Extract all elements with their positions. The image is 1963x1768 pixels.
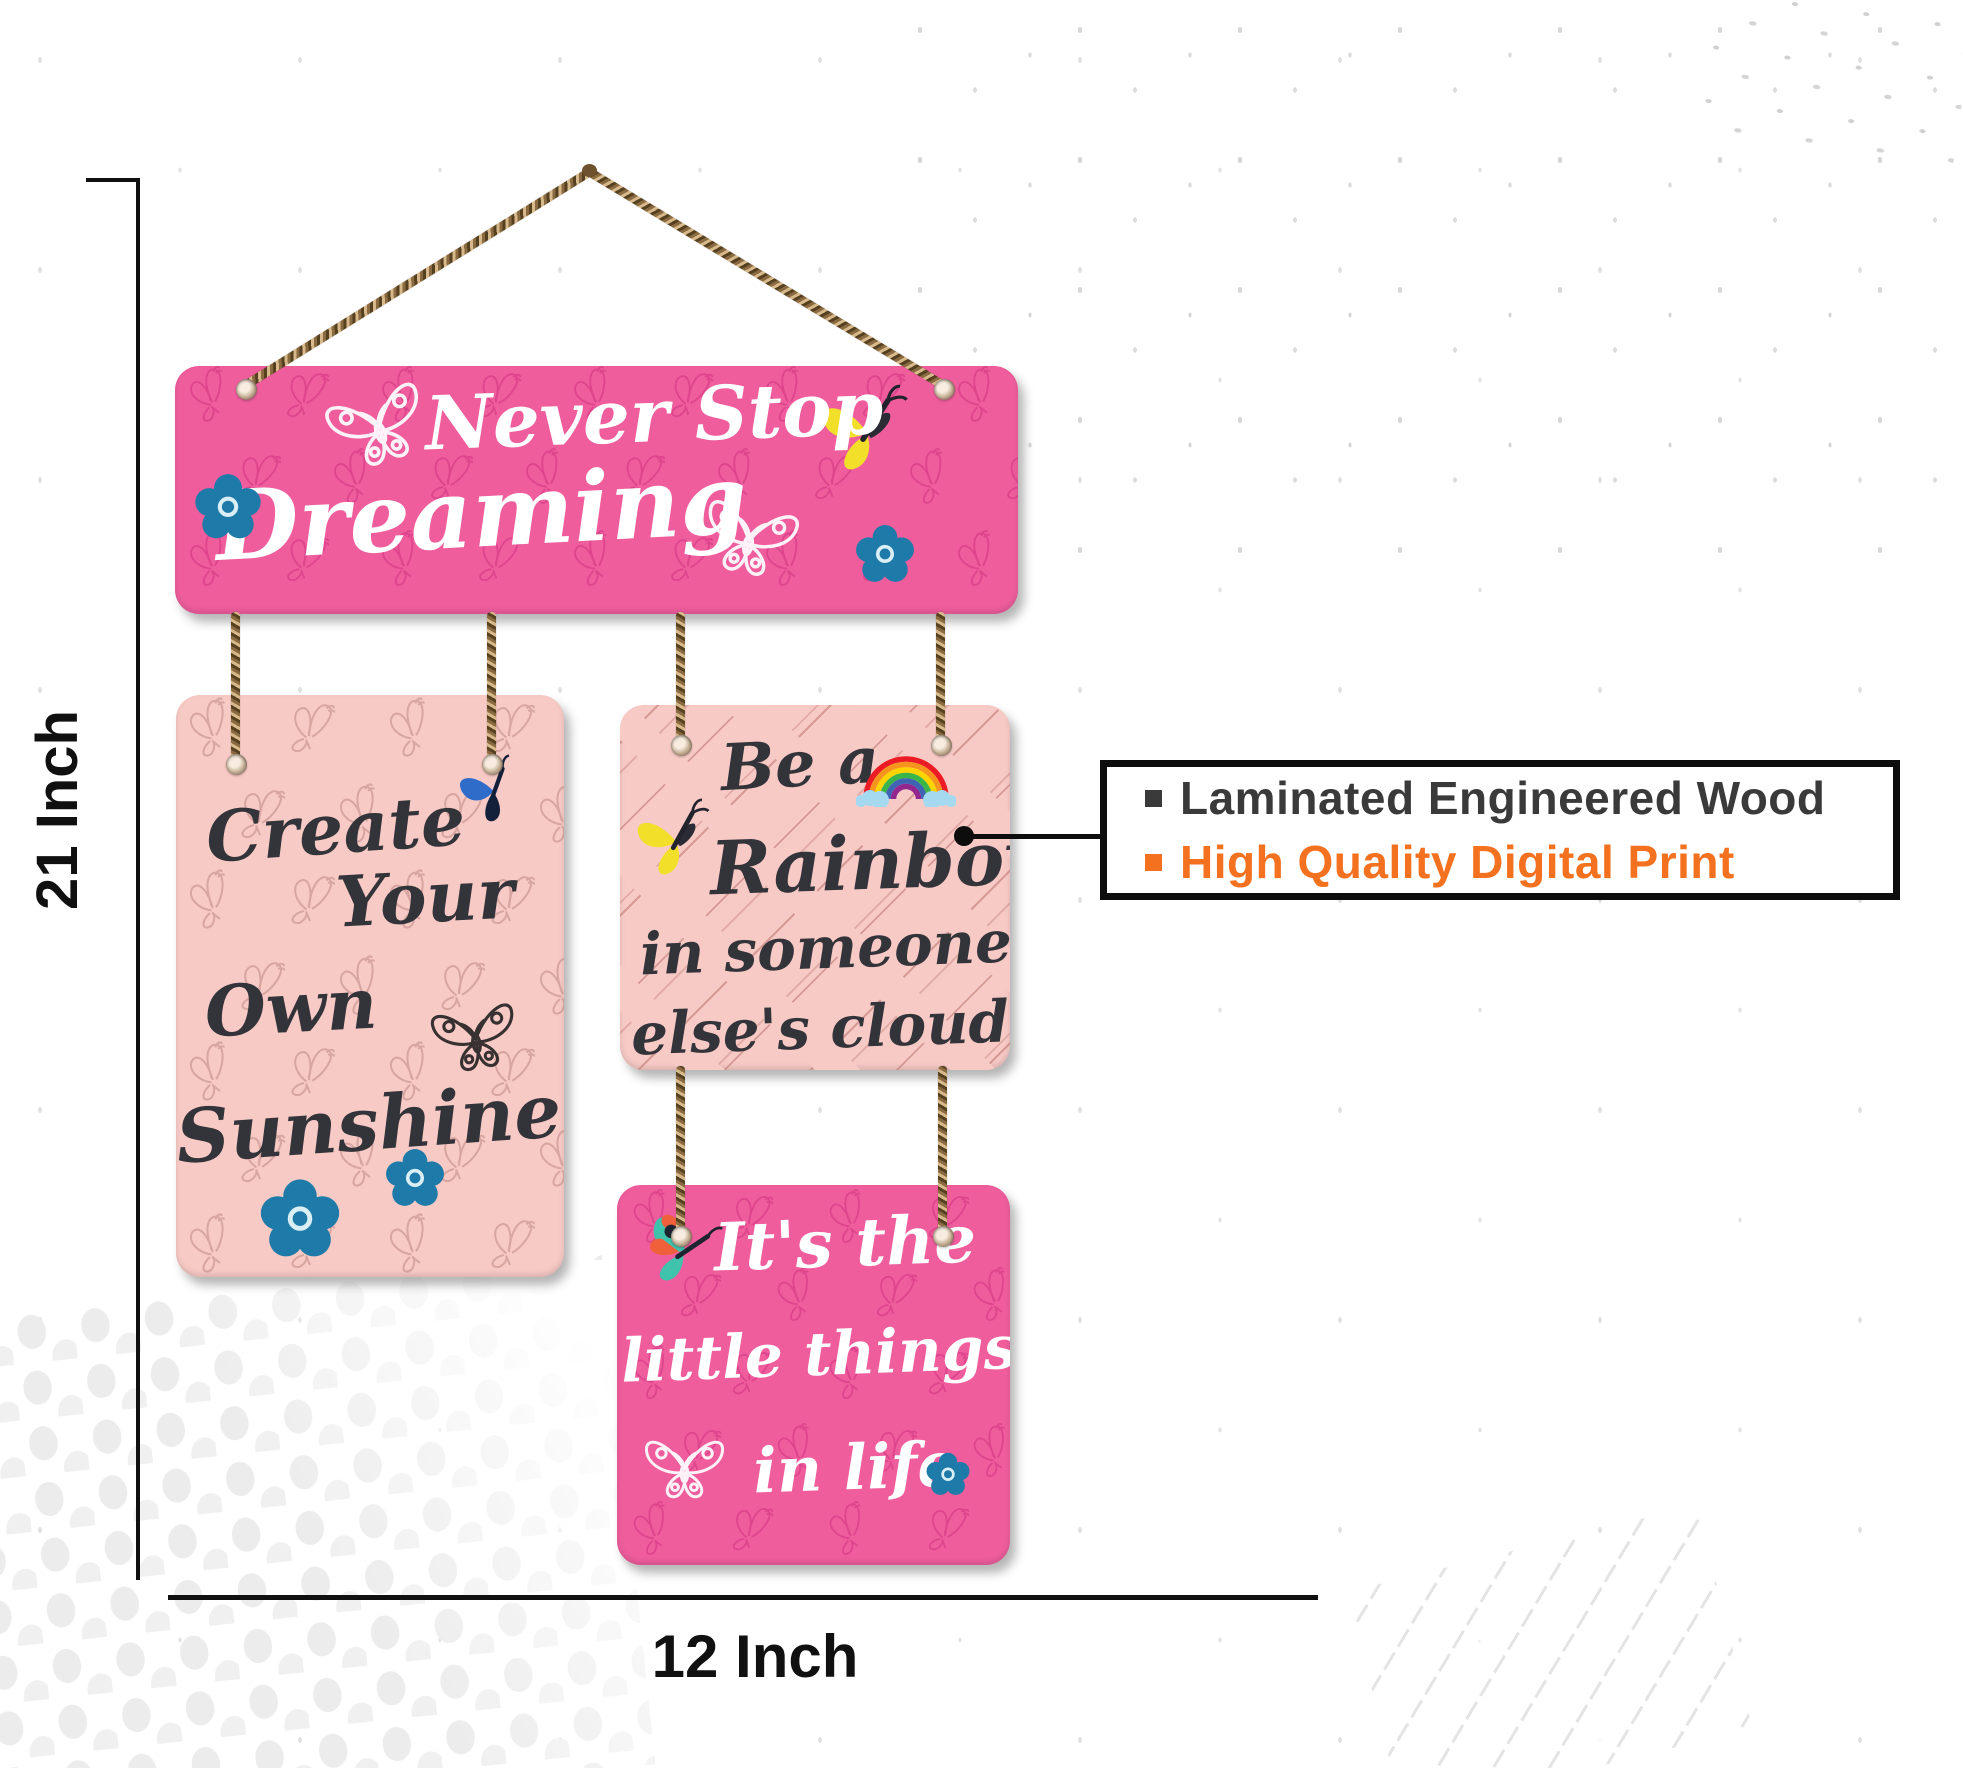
board-create-your-own-sunshine: Create Your Own Sunshine	[176, 695, 564, 1277]
height-dimension-label: 21 Inch	[28, 690, 88, 930]
product-image: Never Stop Dreaming Create Your Own Suns…	[0, 0, 1963, 1768]
rope-hanger	[487, 612, 496, 767]
board-text-line: else's cloud	[629, 992, 1010, 1063]
rope-hanger	[676, 612, 685, 747]
rope-hanger	[938, 1066, 947, 1238]
lace-butterfly-icon	[685, 471, 815, 601]
height-dimension-cap	[86, 178, 140, 182]
callout-connector-line	[963, 834, 1100, 839]
square-bullet-icon	[1145, 790, 1162, 807]
background-halftone-fade	[0, 1260, 700, 1768]
board-text-line: Dreaming	[213, 453, 717, 575]
rope-hole	[236, 379, 257, 400]
rope-hole	[934, 379, 955, 400]
rope-hole	[482, 754, 503, 775]
blue-flower-icon	[384, 1148, 446, 1210]
board-text-line: Own	[176, 967, 408, 1049]
callout-item-label: High Quality Digital Print	[1180, 835, 1735, 889]
width-dimension-line	[168, 1595, 1318, 1600]
rope-hole	[671, 735, 692, 756]
rope-knot	[582, 164, 597, 177]
height-dimension-line	[136, 180, 140, 1580]
rope-hanger	[936, 612, 945, 747]
callout-item-label: Laminated Engineered Wood	[1180, 771, 1826, 825]
rope-hole	[931, 735, 952, 756]
callout-item: High Quality Digital Print	[1145, 835, 1893, 889]
rope-hanger	[231, 612, 240, 767]
feature-callout-box: Laminated Engineered Wood High Quality D…	[1100, 760, 1900, 900]
board-text-line: in someone	[639, 913, 1010, 984]
rope-hole	[226, 754, 247, 775]
board-be-a-rainbow: Be a Rainbow in someone else's cloud	[620, 705, 1010, 1070]
callout-item: Laminated Engineered Wood	[1145, 771, 1893, 825]
width-dimension-label: 12 Inch	[605, 1622, 905, 1691]
rope-hanger	[676, 1066, 685, 1238]
blue-flower-icon	[854, 524, 916, 586]
board-text-line: little things	[620, 1318, 1007, 1391]
rope-hole	[933, 1226, 954, 1247]
blue-flower-icon	[258, 1178, 342, 1262]
board-never-stop-dreaming: Never Stop Dreaming	[175, 366, 1018, 614]
square-bullet-icon	[1145, 854, 1162, 871]
blue-flower-icon	[925, 1452, 971, 1498]
blue-flower-icon	[193, 473, 263, 543]
board-text-line: Your	[308, 857, 541, 939]
rope-hole	[671, 1226, 692, 1247]
lace-butterfly-icon	[637, 1418, 732, 1513]
